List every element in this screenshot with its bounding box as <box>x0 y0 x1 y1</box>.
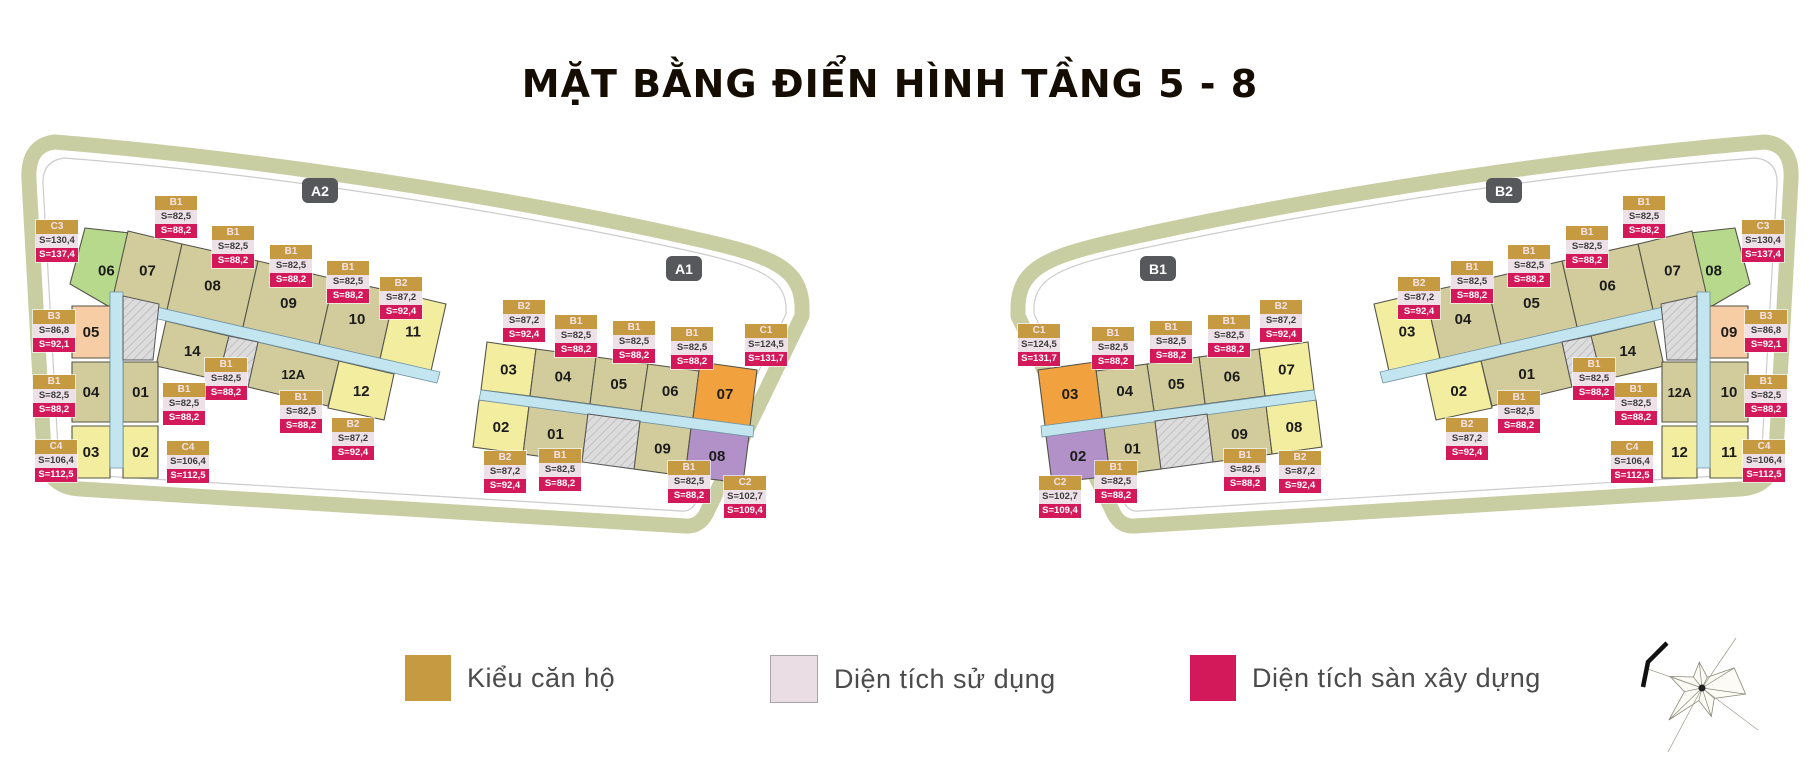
area-chip-B1: B1S=82,5S=88,2 <box>1150 321 1192 363</box>
unit-type-label: B1 <box>1095 461 1137 475</box>
built-area-value: S=112,5 <box>167 469 209 483</box>
unit-type-label: B1 <box>327 261 369 275</box>
built-area-value: S=88,2 <box>1623 224 1665 238</box>
unit-type-label: B1 <box>1745 375 1787 389</box>
area-chip-B2: B2S=87,2S=92,4 <box>484 451 526 493</box>
usable-area-value: S=87,2 <box>1279 465 1321 479</box>
legend-label: Diện tích sàn xây dựng <box>1252 663 1541 694</box>
area-chip-B1: B1S=82,5S=88,2 <box>1092 327 1134 369</box>
unit-number: 10 <box>349 311 366 328</box>
usable-area-value: S=130,4 <box>36 234 78 248</box>
section-badge-B2: B2 <box>1486 178 1522 203</box>
built-area-value: S=112,5 <box>1743 468 1785 482</box>
section-badge-A1: A1 <box>666 256 702 281</box>
unit-type-label: B1 <box>1573 358 1615 372</box>
floor-plan-page: MẶT BẰNG ĐIỂN HÌNH TẦNG 5 - 8 0607080910… <box>0 0 1814 768</box>
built-area-value: S=88,2 <box>212 254 254 268</box>
built-area-value: S=92,4 <box>503 328 545 342</box>
usable-area-value: S=86,8 <box>33 324 75 338</box>
section-badge-A2: A2 <box>302 178 338 203</box>
usable-area-value: S=87,2 <box>380 291 422 305</box>
unit-number: 03 <box>83 444 100 461</box>
unit-type-label: B1 <box>1623 196 1665 210</box>
usable-area-value: S=106,4 <box>35 454 77 468</box>
unit-type-label: C3 <box>36 220 78 234</box>
built-area-value: S=131,7 <box>745 352 787 366</box>
unit-type-label: B1 <box>668 461 710 475</box>
built-area-value: S=88,2 <box>1150 349 1192 363</box>
area-chip-C1: C1S=124,5S=131,7 <box>1018 324 1060 366</box>
usable-area-value: S=124,5 <box>745 338 787 352</box>
unit-type-label: B1 <box>1615 383 1657 397</box>
unit-number: 05 <box>1523 295 1540 312</box>
area-chip-B2: B2S=87,2S=92,4 <box>1398 277 1440 319</box>
area-chip-B1: B1S=82,5S=88,2 <box>613 321 655 363</box>
usable-area-value: S=82,5 <box>1224 463 1266 477</box>
built-area-value: S=92,4 <box>1260 328 1302 342</box>
usable-area-value: S=82,5 <box>1623 210 1665 224</box>
area-chip-B1: B1S=82,5S=88,2 <box>33 375 75 417</box>
usable-area-value: S=82,5 <box>1451 275 1493 289</box>
unit-number: 12A <box>1668 385 1692 400</box>
area-chip-B1: B1S=82,5S=88,2 <box>1498 391 1540 433</box>
usable-area-value: S=82,5 <box>270 259 312 273</box>
unit-type-label: B2 <box>1446 418 1488 432</box>
usable-area-value: S=82,5 <box>163 397 205 411</box>
unit-number: 09 <box>1231 426 1248 443</box>
unit-type-label: B1 <box>1092 327 1134 341</box>
built-area-value: S=88,2 <box>1508 273 1550 287</box>
built-area-value: S=88,2 <box>155 224 197 238</box>
area-chip-B2: B2S=87,2S=92,4 <box>503 300 545 342</box>
usable-area-value: S=82,5 <box>212 240 254 254</box>
usable-area-value: S=106,4 <box>1743 454 1785 468</box>
section-badge-B1: B1 <box>1140 256 1176 281</box>
unit-type-label: B1 <box>163 383 205 397</box>
area-chip-B1: B1S=82,5S=88,2 <box>1566 226 1608 268</box>
unit-number: 09 <box>280 295 297 312</box>
legend: Kiểu căn hộ Diện tích sử dụng Diện tích … <box>0 648 1814 718</box>
area-chip-B1: B1S=82,5S=88,2 <box>671 327 713 369</box>
usable-area-value: S=102,7 <box>724 490 766 504</box>
area-chip-B2: B2S=87,2S=92,4 <box>1279 451 1321 493</box>
unit-number: 04 <box>1455 311 1472 328</box>
area-chip-B3: B3S=86,8S=92,1 <box>1745 310 1787 352</box>
built-area-value: S=88,2 <box>1566 254 1608 268</box>
unit-type-label: B2 <box>503 300 545 314</box>
built-area-value: S=88,2 <box>1573 386 1615 400</box>
built-area-value: S=92,4 <box>380 305 422 319</box>
built-area-value: S=137,4 <box>1742 248 1784 262</box>
built-area-value: S=88,2 <box>1208 343 1250 357</box>
unit-number: 01 <box>132 384 149 401</box>
built-area-value: S=88,2 <box>163 411 205 425</box>
unit-type-label: B3 <box>33 310 75 324</box>
area-chip-B1: B1S=82,5S=88,2 <box>1208 315 1250 357</box>
built-area-value: S=88,2 <box>671 355 713 369</box>
built-area-value: S=92,4 <box>332 446 374 460</box>
unit-type-label: B1 <box>539 449 581 463</box>
unit-type-label: B1 <box>155 196 197 210</box>
legend-item-unit-type: Kiểu căn hộ <box>405 655 615 701</box>
area-chip-C3: C3S=130,4S=137,4 <box>1742 220 1784 262</box>
built-area-value: S=88,2 <box>1224 477 1266 491</box>
built-area-value: S=88,2 <box>327 289 369 303</box>
unit-type-label: B1 <box>280 391 322 405</box>
unit-type-label: B1 <box>1150 321 1192 335</box>
legend-label: Diện tích sử dụng <box>834 664 1056 695</box>
unit-type-label: B2 <box>380 277 422 291</box>
built-area-value: S=92,4 <box>484 479 526 493</box>
usable-area-value: S=82,5 <box>155 210 197 224</box>
area-chip-B1: B1S=82,5S=88,2 <box>212 226 254 268</box>
built-area-value: S=92,4 <box>1279 479 1321 493</box>
built-area-value: S=88,2 <box>668 489 710 503</box>
area-chip-B1: B1S=82,5S=88,2 <box>555 315 597 357</box>
area-chip-B1: B1S=82,5S=88,2 <box>270 245 312 287</box>
area-chip-B1: B1S=82,5S=88,2 <box>539 449 581 491</box>
area-chip-C2: C2S=102,7S=109,4 <box>1039 476 1081 518</box>
area-chip-B1: B1S=82,5S=88,2 <box>163 383 205 425</box>
usable-area-value: S=102,7 <box>1039 490 1081 504</box>
built-area-swatch <box>1190 655 1236 701</box>
unit-type-label: B1 <box>270 245 312 259</box>
usable-area-value: S=87,2 <box>1260 314 1302 328</box>
unit-number: 06 <box>1599 278 1616 295</box>
area-chip-B1: B1S=82,5S=88,2 <box>1623 196 1665 238</box>
unit-type-label: B1 <box>1451 261 1493 275</box>
area-chip-C1: C1S=124,5S=131,7 <box>745 324 787 366</box>
unit-type-label: C3 <box>1742 220 1784 234</box>
unit-type-label: C1 <box>745 324 787 338</box>
built-area-value: S=131,7 <box>1018 352 1060 366</box>
unit-type-label: B1 <box>1566 226 1608 240</box>
corridor <box>110 292 123 468</box>
usable-area-value: S=82,5 <box>1095 475 1137 489</box>
usable-area-value: S=87,2 <box>1446 432 1488 446</box>
unit-type-label: B3 <box>1745 310 1787 324</box>
unit-number: 03 <box>1399 324 1416 341</box>
usable-area-value: S=82,5 <box>555 329 597 343</box>
area-chip-C4: C4S=106,4S=112,5 <box>1743 440 1785 482</box>
unit-type-label: B1 <box>33 375 75 389</box>
area-chip-B1: B1S=82,5S=88,2 <box>205 358 247 400</box>
unit-type-label: C4 <box>35 440 77 454</box>
usable-area-value: S=87,2 <box>484 465 526 479</box>
usable-area-value: S=82,5 <box>1566 240 1608 254</box>
unit-type-label: B2 <box>332 418 374 432</box>
usable-area-value: S=87,2 <box>332 432 374 446</box>
usable-area-value: S=82,5 <box>1150 335 1192 349</box>
usable-area-value: S=87,2 <box>503 314 545 328</box>
unit-number: 06 <box>1224 369 1241 386</box>
built-area-value: S=92,4 <box>1398 305 1440 319</box>
usable-area-value: S=82,5 <box>205 372 247 386</box>
usable-area-value: S=106,4 <box>1611 455 1653 469</box>
unit-type-label: B1 <box>613 321 655 335</box>
area-chip-C2: C2S=102,7S=109,4 <box>724 476 766 518</box>
unit-type-label: B1 <box>212 226 254 240</box>
usable-area-value: S=82,5 <box>280 405 322 419</box>
usable-area-value: S=82,5 <box>613 335 655 349</box>
unit-number: 09 <box>654 441 671 458</box>
unit-type-label: C4 <box>1611 441 1653 455</box>
usable-area-value: S=82,5 <box>1508 259 1550 273</box>
usable-area-value: S=130,4 <box>1742 234 1784 248</box>
unit-type-label: B1 <box>1498 391 1540 405</box>
unit-number: 07 <box>1664 263 1681 280</box>
area-chip-C4: C4S=106,4S=112,5 <box>35 440 77 482</box>
unit-number: 03 <box>1062 386 1079 403</box>
built-area-value: S=92,1 <box>1745 338 1787 352</box>
built-area-value: S=88,2 <box>270 273 312 287</box>
built-area-value: S=88,2 <box>33 403 75 417</box>
unit-type-label: B1 <box>555 315 597 329</box>
built-area-value: S=88,2 <box>1451 289 1493 303</box>
area-chip-B1: B1S=82,5S=88,2 <box>1224 449 1266 491</box>
area-chip-B1: B1S=82,5S=88,2 <box>1508 245 1550 287</box>
unit-number: 08 <box>709 448 726 465</box>
unit-number: 05 <box>83 324 100 341</box>
built-area-value: S=88,2 <box>539 477 581 491</box>
legend-item-usable-area: Diện tích sử dụng <box>770 655 1056 703</box>
area-chip-B3: B3S=86,8S=92,1 <box>33 310 75 352</box>
area-chip-B2: B2S=87,2S=92,4 <box>1446 418 1488 460</box>
unit-number: 06 <box>98 262 115 279</box>
area-chip-B1: B1S=82,5S=88,2 <box>1573 358 1615 400</box>
unit-number: 08 <box>1705 262 1722 279</box>
unit-number: 12A <box>281 367 305 382</box>
built-area-value: S=88,2 <box>613 349 655 363</box>
built-area-value: S=109,4 <box>724 504 766 518</box>
legend-label: Kiểu căn hộ <box>467 663 615 694</box>
area-chip-B1: B1S=82,5S=88,2 <box>280 391 322 433</box>
unit-type-label: B2 <box>1279 451 1321 465</box>
unit-type-label: C1 <box>1018 324 1060 338</box>
unit-number: 11 <box>405 324 421 341</box>
unit-type-label: B1 <box>1508 245 1550 259</box>
usable-area-swatch <box>770 655 818 703</box>
unit-type-label: B1 <box>1208 315 1250 329</box>
unit-number: 12 <box>1671 444 1688 461</box>
unit-number: 03 <box>500 361 517 378</box>
area-chip-B2: B2S=87,2S=92,4 <box>332 418 374 460</box>
usable-area-value: S=82,5 <box>668 475 710 489</box>
unit-number: 01 <box>1124 441 1141 458</box>
unit-type-label: B2 <box>484 451 526 465</box>
area-chip-B2: B2S=87,2S=92,4 <box>380 277 422 319</box>
unit-number: 05 <box>610 376 627 393</box>
area-chip-B1: B1S=82,5S=88,2 <box>1095 461 1137 503</box>
unit-number: 14 <box>184 343 201 360</box>
area-chip-B1: B1S=82,5S=88,2 <box>668 461 710 503</box>
built-area-value: S=112,5 <box>1611 469 1653 483</box>
unit-number: 09 <box>1721 324 1738 341</box>
unit-type-label: B1 <box>205 358 247 372</box>
built-area-value: S=88,2 <box>280 419 322 433</box>
usable-area-value: S=86,8 <box>1745 324 1787 338</box>
service-core <box>1155 414 1213 469</box>
unit-number: 01 <box>547 426 564 443</box>
usable-area-value: S=87,2 <box>1398 291 1440 305</box>
unit-type-label: B1 <box>1224 449 1266 463</box>
unit-number: 04 <box>83 384 100 401</box>
usable-area-value: S=82,5 <box>1615 397 1657 411</box>
unit-number: 06 <box>662 383 679 400</box>
usable-area-value: S=82,5 <box>327 275 369 289</box>
unit-number: 04 <box>555 369 572 386</box>
built-area-value: S=92,1 <box>33 338 75 352</box>
usable-area-value: S=124,5 <box>1018 338 1060 352</box>
corridor <box>1697 292 1710 468</box>
built-area-value: S=88,2 <box>1092 355 1134 369</box>
unit-number: 14 <box>1619 343 1636 360</box>
unit-number: 10 <box>1721 384 1738 401</box>
area-chip-C4: C4S=106,4S=112,5 <box>167 441 209 483</box>
unit-type-label: B2 <box>1260 300 1302 314</box>
usable-area-value: S=82,5 <box>1092 341 1134 355</box>
area-chip-C4: C4S=106,4S=112,5 <box>1611 441 1653 483</box>
unit-number: 07 <box>1278 361 1295 378</box>
built-area-value: S=88,2 <box>1498 419 1540 433</box>
unit-number: 07 <box>139 263 156 280</box>
unit-type-label: C4 <box>1743 440 1785 454</box>
service-core <box>582 414 640 469</box>
built-area-value: S=92,4 <box>1446 446 1488 460</box>
usable-area-value: S=82,5 <box>671 341 713 355</box>
area-chip-C3: C3S=130,4S=137,4 <box>36 220 78 262</box>
area-chip-B1: B1S=82,5S=88,2 <box>1451 261 1493 303</box>
built-area-value: S=109,4 <box>1039 504 1081 518</box>
area-chip-B1: B1S=82,5S=88,2 <box>155 196 197 238</box>
built-area-value: S=88,2 <box>555 343 597 357</box>
usable-area-value: S=82,5 <box>33 389 75 403</box>
area-chip-B1: B1S=82,5S=88,2 <box>1615 383 1657 425</box>
unit-type-swatch <box>405 655 451 701</box>
unit-number: 07 <box>717 386 734 403</box>
unit-number: 02 <box>1450 383 1467 400</box>
area-chip-B2: B2S=87,2S=92,4 <box>1260 300 1302 342</box>
unit-number: 02 <box>493 419 510 436</box>
usable-area-value: S=106,4 <box>167 455 209 469</box>
unit-type-label: C2 <box>1039 476 1081 490</box>
area-chip-B1: B1S=82,5S=88,2 <box>1745 375 1787 417</box>
built-area-value: S=88,2 <box>1095 489 1137 503</box>
unit-type-label: C4 <box>167 441 209 455</box>
unit-number: 08 <box>204 278 221 295</box>
unit-number: 11 <box>1721 444 1737 461</box>
usable-area-value: S=82,5 <box>1498 405 1540 419</box>
built-area-value: S=112,5 <box>35 468 77 482</box>
unit-number: 04 <box>1116 383 1133 400</box>
unit-number: 01 <box>1518 366 1535 383</box>
service-core <box>123 296 159 360</box>
area-chip-B1: B1S=82,5S=88,2 <box>327 261 369 303</box>
unit-number: 12 <box>353 383 370 400</box>
unit-number: 02 <box>1070 448 1087 465</box>
unit-type-label: B2 <box>1398 277 1440 291</box>
unit-type-label: B1 <box>671 327 713 341</box>
usable-area-value: S=82,5 <box>1745 389 1787 403</box>
built-area-value: S=137,4 <box>36 248 78 262</box>
service-core <box>1661 296 1697 360</box>
unit-number: 02 <box>132 444 149 461</box>
usable-area-value: S=82,5 <box>539 463 581 477</box>
usable-area-value: S=82,5 <box>1573 372 1615 386</box>
built-area-value: S=88,2 <box>1745 403 1787 417</box>
usable-area-value: S=82,5 <box>1208 329 1250 343</box>
unit-type-label: C2 <box>724 476 766 490</box>
built-area-value: S=88,2 <box>1615 411 1657 425</box>
unit-number: 05 <box>1168 376 1185 393</box>
built-area-value: S=88,2 <box>205 386 247 400</box>
unit-number: 08 <box>1286 419 1303 436</box>
legend-item-built-area: Diện tích sàn xây dựng <box>1190 655 1541 701</box>
